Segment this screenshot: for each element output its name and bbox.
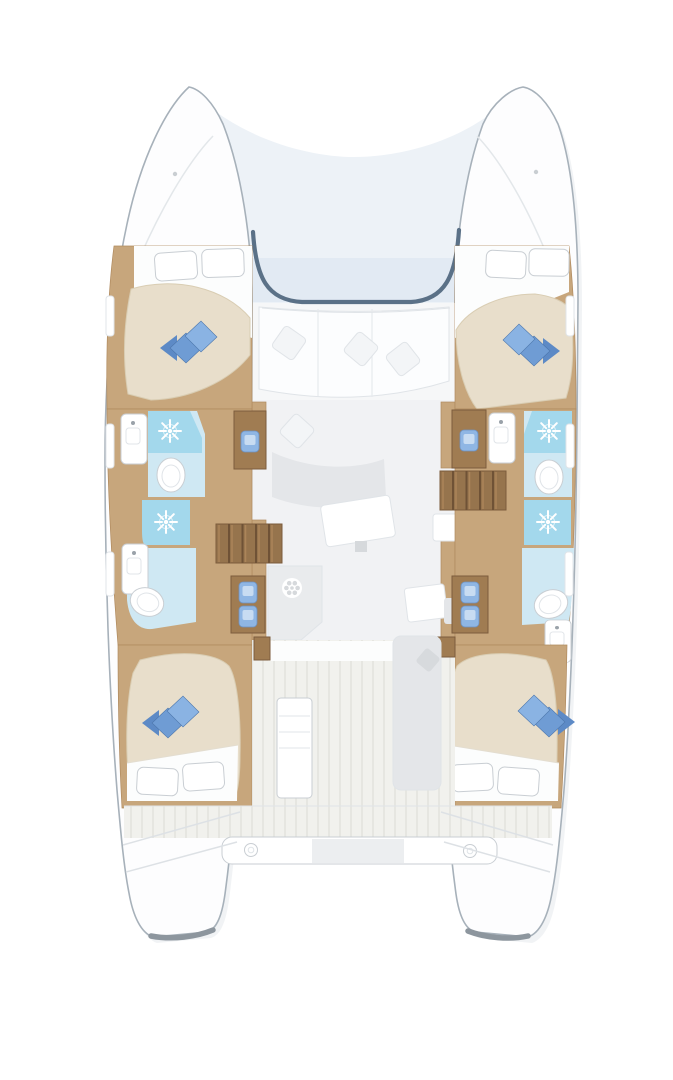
desk-chair [239, 606, 257, 627]
pillow-icon [202, 248, 245, 277]
desk-chair [460, 430, 478, 451]
pillow-icon [485, 250, 526, 279]
nav-table [404, 584, 448, 623]
portlight [106, 552, 114, 596]
port-aft-cabin [118, 645, 252, 808]
pillow-icon [451, 763, 493, 792]
cockpit-cabinet [254, 637, 270, 660]
shower-icon [538, 420, 560, 442]
desk-chair [461, 582, 479, 603]
toilet-icon [157, 458, 185, 492]
port-forward-cabin [107, 246, 252, 409]
desk-chair [239, 582, 257, 603]
starboard-forward-cabin [455, 246, 576, 409]
pillow-icon [154, 251, 198, 282]
sink-icon [489, 413, 515, 463]
stove-burner-icon [282, 578, 302, 598]
aft-deck-band [124, 806, 552, 838]
nav-table-group [404, 584, 448, 623]
portlight [106, 424, 114, 468]
desk-chair [461, 606, 479, 627]
stairs-icon [440, 471, 506, 510]
starboard-cleat-icon [534, 170, 538, 174]
stern-beam [222, 837, 497, 864]
sink-icon [122, 544, 148, 594]
portlight [565, 552, 573, 596]
saloon-door-zone [268, 641, 394, 661]
pillow-icon [529, 249, 569, 277]
pillow-icon [182, 762, 225, 792]
pillow-icon [136, 767, 178, 796]
portlight [566, 296, 574, 336]
starboard-settee [433, 514, 457, 541]
table-pedestal [355, 541, 367, 552]
shower-icon [537, 511, 559, 533]
portlight [566, 424, 574, 468]
sink-icon [121, 414, 147, 464]
port-cleat-icon [173, 172, 177, 176]
beam-fitting [245, 844, 258, 857]
stairs-icon [216, 524, 282, 563]
galley-counter [268, 566, 322, 640]
starboard-aft-cabin [447, 645, 575, 808]
foredeck-glass-deep [252, 258, 456, 302]
desk-chair [241, 431, 259, 452]
toilet-icon [535, 460, 563, 494]
catamaran-deck-plan [0, 0, 673, 1080]
shower-icon [155, 511, 177, 533]
pillow-icon [497, 767, 540, 797]
shower-icon [159, 420, 181, 442]
portlight [106, 296, 114, 336]
beam-center [312, 839, 404, 863]
